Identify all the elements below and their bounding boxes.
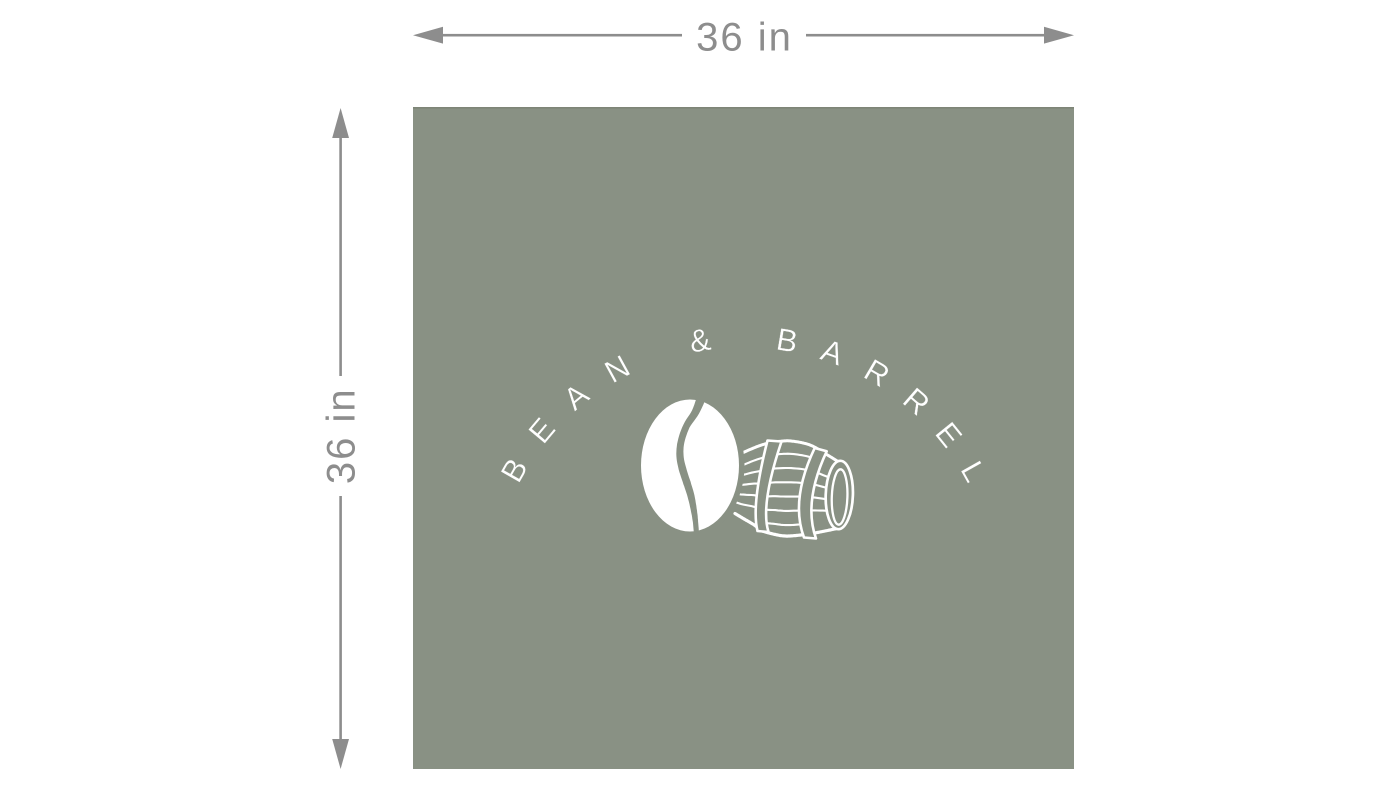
svg-text:36 in: 36 in xyxy=(696,16,793,60)
svg-text:36 in: 36 in xyxy=(320,387,364,484)
